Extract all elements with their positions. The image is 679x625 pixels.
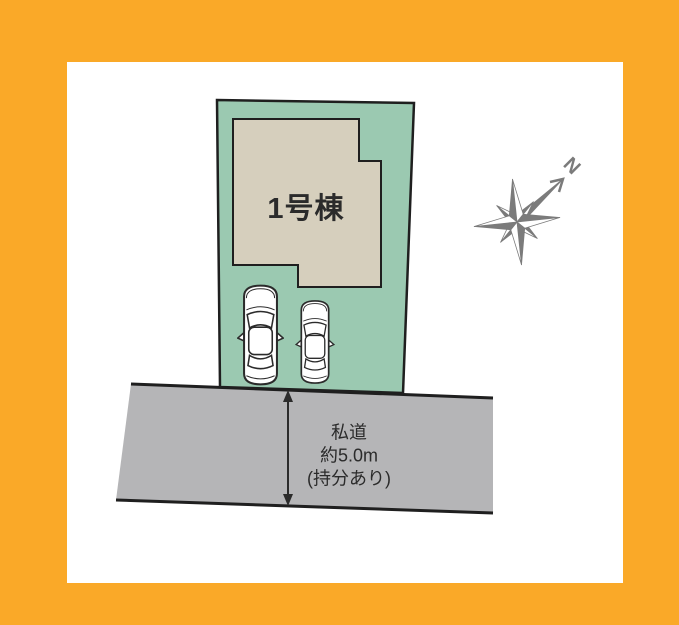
plot-layout-drawing	[67, 62, 623, 583]
road-label-line-3: (持分あり)	[307, 468, 391, 491]
diagram-panel: 1号棟 私道 約5.0m (持分あり) N	[67, 62, 623, 583]
road-label-line-2: 約5.0m	[307, 445, 391, 468]
private-road-shape	[116, 384, 493, 513]
compass-rose-icon	[470, 175, 565, 270]
house-label: 1号棟	[267, 185, 344, 227]
orange-frame: 1号棟 私道 約5.0m (持分あり) N	[0, 0, 679, 625]
road-label-line-1: 私道	[307, 422, 391, 445]
car-small-icon	[296, 301, 334, 383]
private-road	[116, 384, 493, 513]
car-large-icon	[238, 286, 283, 385]
road-label: 私道 約5.0m (持分あり)	[307, 422, 391, 491]
